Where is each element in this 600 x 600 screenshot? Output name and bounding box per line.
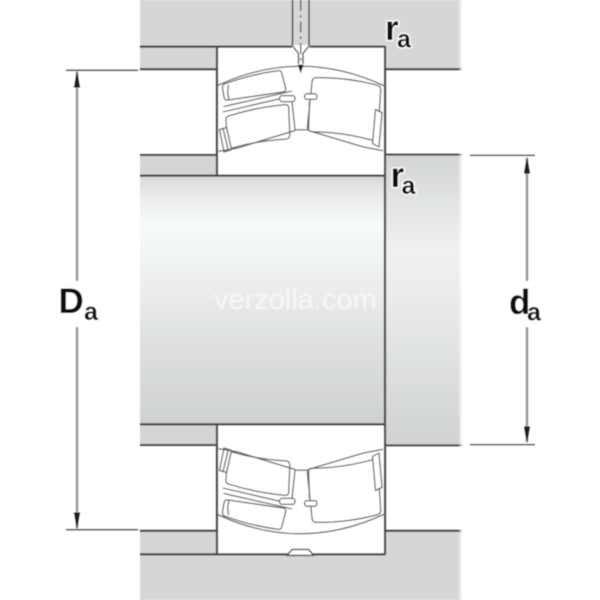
svg-text:D: D: [59, 282, 84, 321]
svg-text:a: a: [84, 298, 99, 326]
svg-text:verzolla.com: verzolla.com: [214, 284, 377, 316]
svg-text:a: a: [402, 172, 417, 200]
svg-text:a: a: [397, 26, 412, 54]
svg-text:a: a: [527, 299, 542, 327]
